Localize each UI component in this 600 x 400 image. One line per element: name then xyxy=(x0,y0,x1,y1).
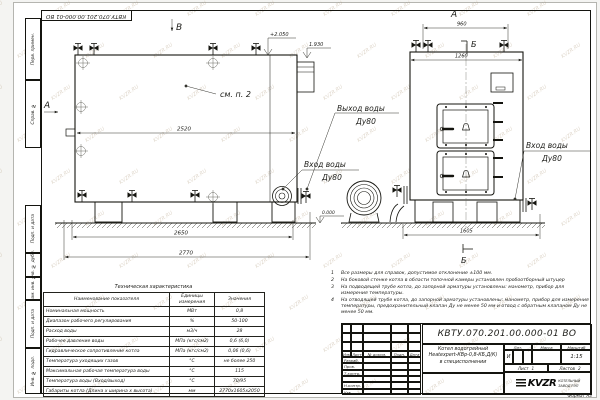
safety-valve-icon xyxy=(90,44,99,56)
logo-stripes-icon xyxy=(516,379,526,388)
mass-value xyxy=(532,350,561,364)
margin-box-podp-data-1: Подп. и дата xyxy=(25,205,41,253)
inlet2-dn: Ду80 xyxy=(541,154,562,163)
drain-valve-icon xyxy=(191,191,200,203)
table-row: Температура уходящих газов°Сне более 250 xyxy=(44,357,265,367)
position-mark-icon xyxy=(206,56,220,70)
company-logo-cell: KVZR КОТЕЛЬНЫЙ ЗАВОД РЭП xyxy=(504,372,592,395)
air-vent-icon xyxy=(424,41,433,53)
dim-960: 960 xyxy=(457,22,467,28)
signature-grid: Разраб. Пров. Т.контр. Н.контр. Утв. xyxy=(342,357,421,395)
drain-valve-icon xyxy=(128,191,137,203)
tech-table: Техническая характеристика Наименование … xyxy=(43,284,264,397)
tech-table-grid: Наименование показателя Единицы измерени… xyxy=(43,292,265,397)
margin-box-vzam-inv: Взам. инв. № xyxy=(25,277,41,300)
inlet1-dn: Ду80 xyxy=(321,173,342,182)
safety-valve-icon xyxy=(209,44,218,56)
outlet-label: Выход воды xyxy=(337,104,385,113)
scale-value: 1:15 xyxy=(561,350,592,364)
table-row: Рабочее давление водыМПа (кгс/см2)0,6 (6… xyxy=(44,337,265,347)
inlet1-label: Вход воды xyxy=(304,160,346,169)
position-mark-icon xyxy=(74,100,88,114)
inlet2-label: Вход воды xyxy=(526,141,568,150)
table-row: Максимальная рабочая температура воды°С1… xyxy=(44,367,265,377)
dim-1605: 1605 xyxy=(460,229,473,235)
table-row: Диапазон рабочего регулирования%50-100 xyxy=(44,317,265,327)
drain-valve-icon xyxy=(78,191,87,203)
revision-grid xyxy=(342,324,421,351)
note-item: 3На подводящей трубе котла, до запорной … xyxy=(331,285,590,298)
logo-text: KVZR xyxy=(528,378,556,389)
table-row: Гидравлическое сопротивление котлаМПа (к… xyxy=(44,347,265,357)
safety-valve-icon xyxy=(74,44,83,56)
margin-box-sprav-no: Справ. № xyxy=(25,80,41,148)
doc-number-top: КВТУ.070.201.00.000-01 ВО xyxy=(46,13,126,19)
company-empty-cell xyxy=(422,373,504,395)
dim-2650: 2650 xyxy=(174,231,188,237)
note-item: 1Все размеры для справок, допустимое отк… xyxy=(331,271,590,277)
view-label-a-side: А xyxy=(43,101,50,111)
section-label-b-top: Б xyxy=(471,40,477,49)
dim-1260: 1260 xyxy=(455,54,468,60)
note-item: 2На боковой стенке котла в области топоч… xyxy=(331,278,590,284)
dim-2770: 2770 xyxy=(179,251,193,257)
note-item: 4На отводящей трубе котла, до запорной а… xyxy=(331,298,590,317)
inlet-valve-icon xyxy=(528,199,537,211)
view-label-a-front: А xyxy=(450,10,457,20)
product-title: Котел водогрейный Heatexpert-КВр-0,8-КБ,… xyxy=(422,344,504,373)
ground-line xyxy=(55,223,545,228)
air-vent-icon xyxy=(412,41,421,53)
margin-box-podp-data-2: Подп. и дата xyxy=(25,300,41,348)
dim-2520: 2520 xyxy=(177,127,191,133)
lit-cells: И xyxy=(504,350,532,364)
outlet-valve-icon xyxy=(393,186,402,198)
sheet-cell: Лист1 xyxy=(504,364,548,372)
elevation-zero: 0.000 xyxy=(322,210,335,216)
doc-number: КВТУ.070.201.00.000-01 ВО xyxy=(422,324,592,344)
table-row: Расход водым3/ч28 xyxy=(44,327,265,337)
tech-table-title: Техническая характеристика xyxy=(43,284,264,290)
table-row: Температура воды (Вход/выход)°С70/95 xyxy=(44,377,265,387)
margin-box-inv-podl: Инв. № подл. xyxy=(25,348,41,394)
logo-subtitle: КОТЕЛЬНЫЙ ЗАВОД РЭП xyxy=(558,379,580,388)
doc-number-top-box: КВТУ.070.201.00.000-01 ВО xyxy=(41,10,132,21)
format-label: Формат А3 xyxy=(548,394,592,399)
elevation-step: 1.930 xyxy=(309,42,323,48)
outlet-dn: Ду80 xyxy=(355,117,376,126)
tech-table-header-row: Наименование показателя Единицы измерени… xyxy=(44,293,265,307)
sheets-cell: Листов2 xyxy=(548,364,592,372)
section-label-b-bottom: Б xyxy=(461,256,467,265)
position-mark-icon xyxy=(76,56,90,70)
outlet-valve-icon xyxy=(302,192,311,204)
side-view xyxy=(66,55,314,222)
air-vent-icon xyxy=(500,41,509,53)
notes-list: 1Все размеры для справок, допустимое отк… xyxy=(331,271,590,317)
table-row: Габариты котла (Длина х ширина х высота)… xyxy=(44,387,265,397)
table-row: Номинальная мощностьМВт0,8 xyxy=(44,307,265,317)
blower-fan xyxy=(347,181,381,222)
view-label-v: В xyxy=(176,23,182,33)
position-mark-icon xyxy=(74,144,88,158)
note-ref: см. п. 2 xyxy=(220,90,251,99)
title-block: Изм. Лист № докум. Подп. Дата Разраб. Пр… xyxy=(341,323,591,394)
safety-valve-icon xyxy=(252,44,261,56)
margin-box-perv-primen: Перв. примен. xyxy=(25,18,41,80)
front-view xyxy=(390,44,526,228)
elevation-top: +2.050 xyxy=(270,32,289,38)
